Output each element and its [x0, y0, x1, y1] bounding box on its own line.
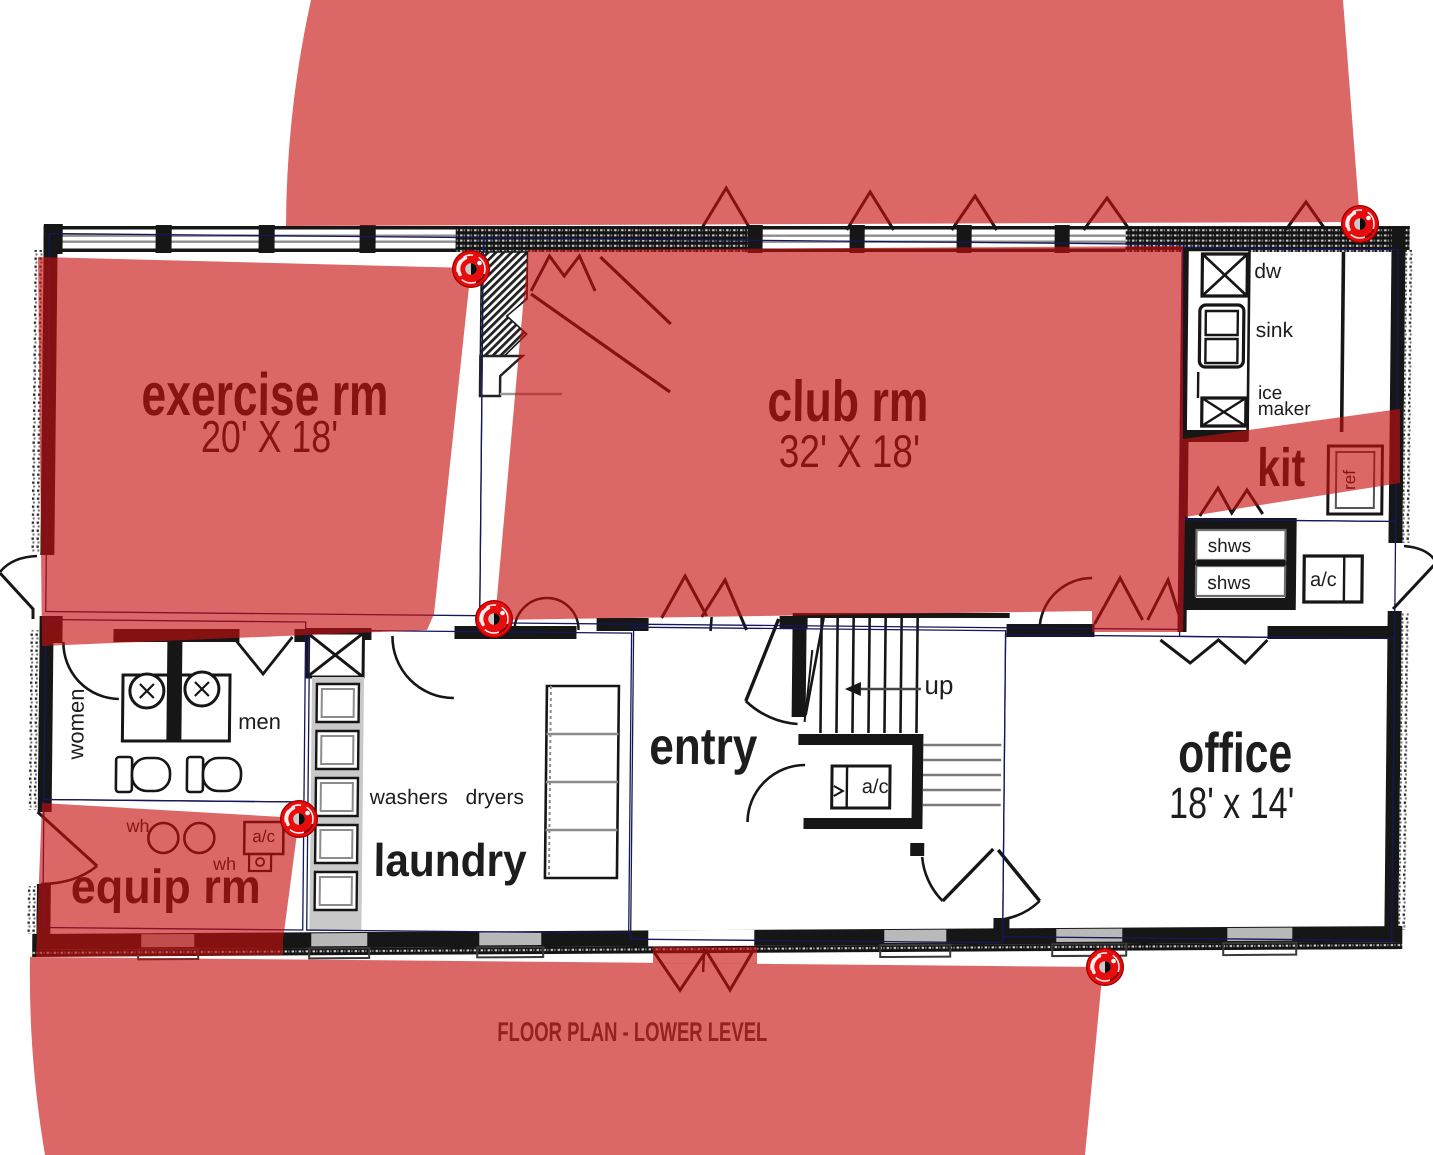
- svg-text:a/c: a/c: [1310, 569, 1337, 591]
- svg-text:a/c: a/c: [862, 776, 889, 798]
- svg-text:washers: washers: [369, 786, 448, 809]
- svg-text:sink: sink: [1256, 319, 1294, 342]
- svg-text:up: up: [924, 670, 953, 700]
- svg-text:office: office: [1178, 721, 1293, 784]
- svg-text:shws: shws: [1207, 573, 1251, 594]
- svg-text:laundry: laundry: [373, 834, 527, 886]
- svg-text:shws: shws: [1208, 536, 1252, 557]
- svg-text:entry: entry: [649, 718, 758, 776]
- svg-text:dw: dw: [1254, 260, 1282, 283]
- svg-text:18' x 14': 18' x 14': [1169, 779, 1295, 828]
- svg-text:women: women: [63, 689, 89, 761]
- svg-text:dryers: dryers: [465, 786, 524, 809]
- svg-text:men: men: [238, 709, 281, 734]
- svg-text:maker: maker: [1258, 399, 1312, 420]
